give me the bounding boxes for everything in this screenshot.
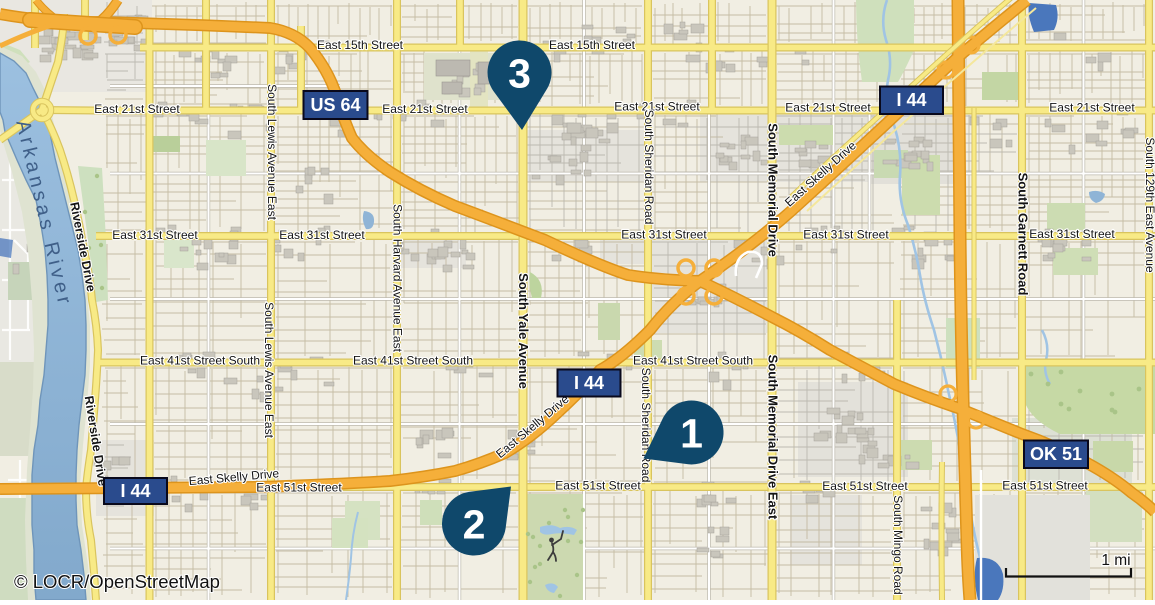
svg-text:South 129th East Avenue: South 129th East Avenue xyxy=(1143,137,1155,273)
svg-text:3: 3 xyxy=(508,51,531,97)
svg-text:South Harvard Avenue East: South Harvard Avenue East xyxy=(390,204,404,353)
svg-text:East 41st Street South: East 41st Street South xyxy=(633,354,753,368)
svg-text:East 31st Street: East 31st Street xyxy=(279,228,365,242)
svg-text:East 31st Street: East 31st Street xyxy=(1029,227,1115,241)
svg-text:East 21st Street: East 21st Street xyxy=(1049,101,1135,115)
svg-text:South Garnett Road: South Garnett Road xyxy=(1016,173,1031,296)
svg-text:South Memorial Drive East: South Memorial Drive East xyxy=(766,355,781,520)
svg-text:East 41st Street South: East 41st Street South xyxy=(353,354,473,368)
svg-text:1 mi: 1 mi xyxy=(1101,552,1130,569)
svg-text:East 51st Street: East 51st Street xyxy=(1002,479,1088,493)
svg-text:East 31st Street: East 31st Street xyxy=(112,228,198,242)
svg-text:© LOCR/OpenStreetMap: © LOCR/OpenStreetMap xyxy=(14,571,220,592)
svg-text:East 51st Street: East 51st Street xyxy=(256,481,342,495)
svg-text:South Sheridan Road: South Sheridan Road xyxy=(642,110,656,225)
svg-text:1: 1 xyxy=(680,411,703,457)
svg-text:East 21st Street: East 21st Street xyxy=(382,102,468,116)
svg-text:South Lewis Avenue East: South Lewis Avenue East xyxy=(265,84,279,221)
svg-text:East 31st Street: East 31st Street xyxy=(803,228,889,242)
svg-text:OK 51: OK 51 xyxy=(1030,444,1082,464)
svg-text:East 21st Street: East 21st Street xyxy=(94,102,180,116)
svg-text:East 15th Street: East 15th Street xyxy=(317,38,404,52)
svg-text:East 31st Street: East 31st Street xyxy=(621,228,707,242)
svg-text:I 44: I 44 xyxy=(574,373,604,393)
svg-text:East 41st Street South: East 41st Street South xyxy=(140,354,260,368)
svg-text:South Yale Avenue: South Yale Avenue xyxy=(516,273,531,389)
svg-text:East 51st Street: East 51st Street xyxy=(555,479,641,493)
svg-text:US 64: US 64 xyxy=(310,95,360,115)
svg-text:I 44: I 44 xyxy=(120,481,150,501)
svg-text:South Lewis Avenue East: South Lewis Avenue East xyxy=(262,302,276,439)
svg-text:East 51st Street: East 51st Street xyxy=(822,479,908,493)
svg-text:East 21st Street: East 21st Street xyxy=(785,101,871,115)
svg-text:I 44: I 44 xyxy=(896,90,926,110)
svg-text:South Sheridan Road: South Sheridan Road xyxy=(639,368,653,483)
svg-text:East 15th Street: East 15th Street xyxy=(549,38,636,52)
svg-text:East 21st Street: East 21st Street xyxy=(614,100,700,114)
svg-text:South Memorial Drive: South Memorial Drive xyxy=(766,123,781,257)
svg-text:2: 2 xyxy=(463,502,486,548)
svg-text:South Mingo Road: South Mingo Road xyxy=(891,495,905,594)
